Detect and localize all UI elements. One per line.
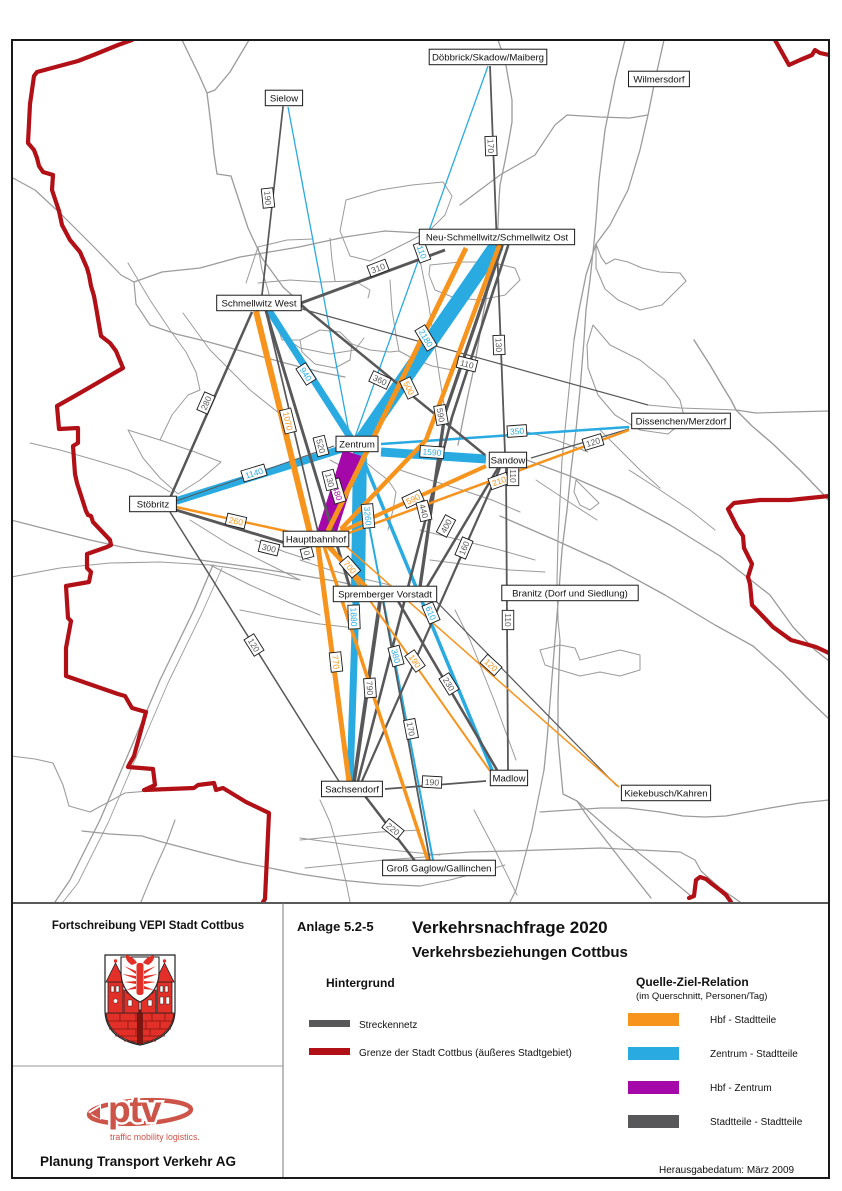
- svg-text:Quelle-Ziel-Relation: Quelle-Ziel-Relation: [636, 975, 749, 989]
- svg-text:Anlage 5.2-5: Anlage 5.2-5: [297, 919, 374, 934]
- svg-text:1880: 1880: [348, 607, 359, 627]
- svg-text:Stöbritz: Stöbritz: [137, 499, 170, 510]
- svg-text:Hbf - Stadtteile: Hbf - Stadtteile: [710, 1015, 777, 1026]
- svg-text:Verkehrsbeziehungen Cottbus: Verkehrsbeziehungen Cottbus: [412, 944, 628, 961]
- svg-text:130: 130: [494, 338, 504, 353]
- svg-text:190: 190: [425, 777, 440, 788]
- svg-text:110: 110: [508, 469, 518, 483]
- svg-text:170: 170: [486, 139, 496, 154]
- svg-text:3260: 3260: [362, 506, 374, 526]
- svg-text:Streckennetz: Streckennetz: [359, 1020, 417, 1031]
- svg-text:Spremberger Vorstadt: Spremberger Vorstadt: [338, 589, 432, 600]
- svg-text:Madlow: Madlow: [492, 773, 525, 784]
- svg-text:Herausgabedatum: März 2009: Herausgabedatum: März 2009: [659, 1165, 795, 1176]
- svg-text:110: 110: [503, 613, 513, 627]
- svg-text:Sandow: Sandow: [491, 455, 526, 466]
- svg-text:190: 190: [262, 190, 273, 205]
- svg-text:Fortschreibung VEPI Stadt Cott: Fortschreibung VEPI Stadt Cottbus: [52, 920, 244, 932]
- svg-text:Branitz (Dorf und Siedlung): Branitz (Dorf und Siedlung): [512, 588, 628, 599]
- svg-text:770: 770: [330, 654, 341, 669]
- svg-text:Schmellwitz West: Schmellwitz West: [222, 298, 297, 309]
- svg-text:ptv: ptv: [108, 1089, 162, 1130]
- svg-text:Hauptbahnhof: Hauptbahnhof: [286, 534, 347, 545]
- svg-text:Sachsendorf: Sachsendorf: [325, 784, 379, 795]
- svg-text:Kiekebusch/Kahren: Kiekebusch/Kahren: [624, 788, 707, 799]
- svg-text:Groß Gaglow/Gallinchen: Groß Gaglow/Gallinchen: [386, 863, 491, 874]
- svg-text:Neu-Schmellwitz/Schmellwitz Os: Neu-Schmellwitz/Schmellwitz Ost: [426, 232, 569, 243]
- svg-text:Döbbrick/Skadow/Maiberg: Döbbrick/Skadow/Maiberg: [432, 52, 544, 63]
- svg-text:1590: 1590: [422, 447, 442, 458]
- svg-text:Grenze der Stadt Cottbus (äuße: Grenze der Stadt Cottbus (äußeres Stadtg…: [359, 1048, 572, 1059]
- svg-text:Zentrum: Zentrum: [339, 439, 375, 450]
- svg-text:Stadtteile - Stadtteile: Stadtteile - Stadtteile: [710, 1117, 803, 1128]
- svg-text:(im Querschnitt, Personen/Tag): (im Querschnitt, Personen/Tag): [636, 991, 767, 1002]
- svg-text:Verkehrsnachfrage 2020: Verkehrsnachfrage 2020: [412, 918, 608, 937]
- svg-text:Zentrum - Stadtteile: Zentrum - Stadtteile: [710, 1049, 798, 1060]
- svg-text:traffic mobility logistics.: traffic mobility logistics.: [110, 1132, 200, 1142]
- svg-text:Sielow: Sielow: [270, 93, 298, 104]
- svg-text:350: 350: [510, 426, 525, 437]
- svg-text:790: 790: [364, 681, 375, 696]
- svg-text:Dissenchen/Merzdorf: Dissenchen/Merzdorf: [636, 416, 727, 427]
- svg-text:Planung Transport Verkehr AG: Planung Transport Verkehr AG: [40, 1154, 236, 1169]
- svg-text:Wilmersdorf: Wilmersdorf: [633, 74, 685, 85]
- svg-text:Hintergrund: Hintergrund: [326, 976, 395, 990]
- svg-text:Hbf - Zentrum: Hbf - Zentrum: [710, 1083, 772, 1094]
